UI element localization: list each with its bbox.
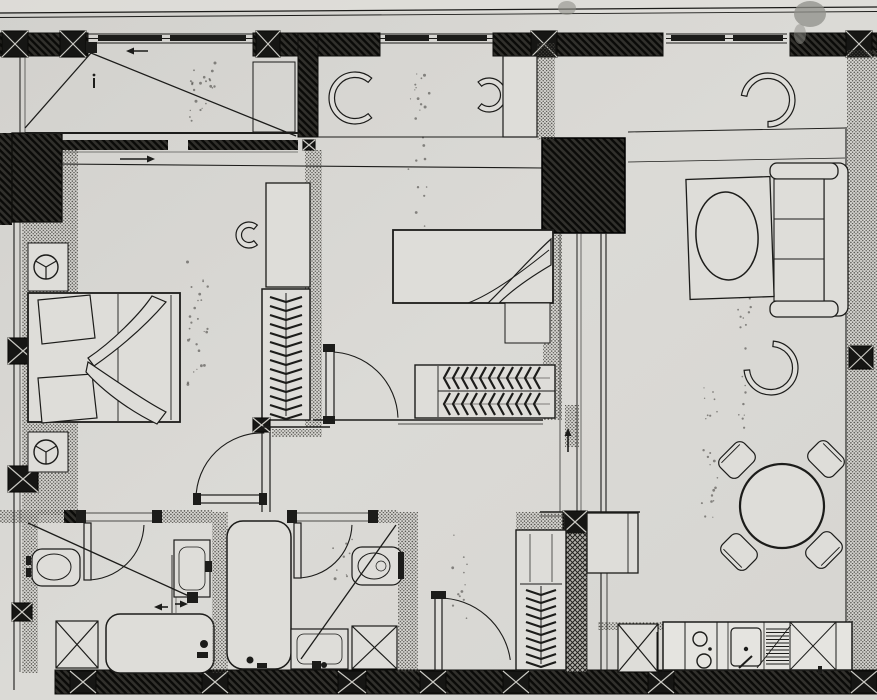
speckle-bedroom1-dot	[203, 364, 206, 367]
door-tip	[193, 493, 201, 505]
speckle-living-upper-dot	[742, 403, 744, 405]
speckle-bedroom2-dot	[424, 106, 427, 109]
speckle-bedroom2-dot	[420, 103, 422, 105]
speckle-balcony-dot	[205, 103, 207, 105]
floor-plan-image	[0, 0, 877, 700]
speckle-bathroom2-dot	[336, 569, 338, 571]
cooktop-burner-1	[693, 632, 707, 646]
speckle-bedroom2-dot	[417, 97, 420, 100]
speckle-entry-dot	[461, 590, 464, 593]
jamb-bath1b	[152, 510, 162, 523]
speckle-living-upper-dot	[742, 376, 744, 378]
door-tip	[259, 493, 267, 505]
speckle-bedroom2-dot	[423, 74, 426, 77]
speckle-bedroom2-dot	[410, 98, 411, 99]
speckle-living-upper-dot	[742, 418, 744, 420]
speckle-bedroom2-dot	[417, 186, 419, 188]
speckle-living-upper-dot	[748, 311, 750, 313]
speckle-entry-dot	[451, 566, 454, 569]
speckle-armchair-dot	[704, 398, 705, 399]
speckle-balcony-dot	[209, 79, 211, 81]
sofa-seats	[774, 179, 824, 301]
speckle-bedroom1-dot	[200, 299, 202, 301]
photo-smudge-3	[794, 24, 806, 44]
speckle-balcony-dot	[203, 76, 206, 79]
speckle-bedroom1-dot	[189, 315, 192, 318]
jamb-bath2b	[368, 510, 378, 523]
speckle-balcony-dot	[202, 108, 203, 109]
speckle-entry-dot	[466, 564, 468, 566]
tub1-drain	[200, 640, 208, 648]
window-sash	[170, 35, 246, 41]
speckle-balcony-dot	[211, 70, 214, 73]
washbasin1-tap	[205, 561, 212, 572]
wall-entry-west	[398, 512, 418, 672]
speckle-bedroom1-dot	[191, 286, 193, 288]
speckle-bedroom1-dot	[204, 331, 205, 332]
bath1-diagonal-end	[187, 592, 198, 603]
window-sash	[385, 35, 429, 41]
photo-smudge-2	[794, 1, 826, 27]
door-tip	[323, 416, 335, 424]
speckle-living-lower-dot	[712, 489, 715, 492]
speckle-bedroom2-dot	[424, 158, 427, 161]
wall-closet-east	[565, 533, 587, 672]
speckle-living-upper-dot	[738, 414, 740, 416]
column-living-big	[542, 138, 625, 233]
speckle-living-lower-dot	[717, 477, 719, 479]
wall-tub-niche	[212, 512, 228, 673]
speckle-bathroom2-dot	[346, 574, 347, 575]
door-leaf-bedroom2	[326, 348, 334, 420]
speckle-living-upper-dot	[749, 298, 750, 299]
window-sash	[98, 35, 162, 41]
speckle-bathroom2-dot	[332, 547, 334, 549]
speckle-living-upper-dot	[740, 316, 742, 318]
speckle-bedroom1-dot	[200, 364, 203, 367]
wall-bath-band-2	[162, 510, 212, 523]
speckle-living-upper-dot	[744, 391, 746, 393]
cooktop-burner-2	[697, 654, 711, 668]
speckle-balcony-dot	[199, 109, 201, 111]
door-leaf-bathroom2	[294, 523, 301, 578]
speckle-bedroom1-dot	[189, 338, 191, 340]
door-tip	[323, 344, 335, 352]
speckle-bedroom2-dot	[424, 225, 426, 227]
speckle-bedroom2-dot	[423, 195, 425, 197]
speckle-bedroom1-dot	[202, 281, 204, 283]
speckle-living-lower-dot	[704, 515, 706, 517]
sofa-armrest-bottom	[770, 301, 838, 317]
speckle-living-upper-dot	[744, 415, 745, 416]
speckle-living-lower-dot	[714, 487, 717, 490]
jamb-bath2	[287, 510, 297, 523]
speckle-entry-dot	[463, 599, 465, 601]
closet-top-wall	[516, 512, 565, 530]
speckle-living-upper-dot	[744, 347, 746, 349]
speckle-bedroom2-dot	[416, 73, 417, 74]
hall-cabinet	[587, 513, 638, 573]
cooktop-dot	[708, 647, 712, 651]
speckle-bedroom2-dot	[426, 186, 428, 188]
speckle-balcony-dot	[213, 85, 215, 87]
speckle-balcony-dot	[189, 116, 191, 118]
speckle-living-lower-dot	[710, 500, 713, 503]
speckle-balcony-dot	[195, 100, 198, 103]
bathtub-bathroom1	[106, 614, 214, 673]
column-balcony-sw	[12, 133, 62, 222]
speckle-entry-dot	[457, 593, 459, 595]
wall-hall-north-stip	[272, 429, 322, 437]
speckle-bedroom1-dot	[196, 369, 197, 370]
speckle-bedroom2-dot	[414, 84, 416, 86]
speckle-bedroom2-dot	[414, 89, 415, 90]
bed-pillow-bottom	[38, 374, 97, 423]
speckle-bedroom2-dot	[419, 110, 420, 111]
speckle-balcony-dot	[190, 110, 191, 111]
speckle-living-lower-dot	[702, 449, 704, 451]
corridor-stip-patch	[565, 405, 579, 447]
right-wall	[847, 50, 877, 693]
window-sash	[437, 35, 487, 41]
speckle-balcony-dot	[212, 87, 214, 89]
tub2-faucet	[257, 663, 267, 668]
jamb-bath1	[76, 510, 86, 523]
toilet1-flush	[26, 556, 31, 565]
speckle-bedroom2-dot	[422, 144, 425, 147]
sink-drain	[744, 647, 748, 651]
speckle-bedroom1-dot	[187, 382, 189, 384]
wall-study-east	[537, 43, 555, 140]
speckle-balcony-dot	[214, 62, 217, 65]
tub1-faucet	[197, 652, 208, 658]
speckle-living-upper-dot	[737, 309, 739, 311]
speckle-bathroom2-dot	[351, 539, 353, 541]
speckle-entry-dot	[459, 595, 461, 597]
speckle-living-lower-dot	[707, 456, 709, 458]
tub2-drain	[247, 657, 254, 664]
top-wall-c	[318, 33, 380, 56]
nightstand-bedroom2	[505, 303, 550, 343]
balcony-tick-dot	[93, 74, 96, 77]
speckle-bedroom1-dot	[195, 343, 197, 345]
speckle-balcony-dot	[199, 82, 202, 85]
washbasin2-tap	[312, 661, 321, 669]
speckle-bedroom1-dot	[205, 331, 208, 334]
speckle-entry-dot	[463, 556, 465, 558]
balcony-sill-bar2	[188, 140, 298, 150]
speckle-bedroom1-dot	[206, 328, 208, 330]
desk-bedroom1	[266, 183, 310, 287]
speckle-living-lower-dot	[709, 464, 710, 465]
speckle-bedroom1-dot	[189, 328, 191, 330]
speckle-bathroom2-dot	[334, 577, 337, 580]
speckle-bedroom2-dot	[415, 211, 418, 214]
speckle-bedroom2-dot	[414, 117, 417, 120]
speckle-balcony-dot	[191, 82, 193, 84]
window-sash	[671, 35, 725, 41]
desk-study	[503, 56, 537, 137]
speckle-bedroom1-dot	[197, 318, 199, 320]
speckle-living-lower-dot	[701, 502, 703, 504]
left-wall-outer	[0, 133, 12, 225]
speckle-living-lower-dot	[713, 460, 716, 463]
speckle-bathroom2-dot	[343, 556, 345, 558]
speckle-living-lower-dot	[713, 500, 715, 502]
speckle-bathroom2-dot	[346, 575, 348, 577]
floor-plan-canvas	[0, 0, 877, 700]
speckle-bedroom1-dot	[190, 322, 192, 324]
bed-pillow-top	[38, 295, 95, 344]
speckle-living-upper-dot	[739, 326, 741, 328]
speckle-bedroom2-dot	[408, 168, 410, 170]
speckle-bedroom2-dot	[421, 77, 423, 79]
speckle-entry-dot	[466, 617, 468, 619]
speckle-living-upper-dot	[744, 385, 746, 387]
speckle-entry-dot	[452, 605, 454, 607]
bathtub-bathroom2	[227, 521, 291, 669]
speckle-entry-dot	[453, 535, 454, 536]
speckle-living-upper-dot	[743, 427, 745, 429]
speckle-bedroom2-dot	[415, 159, 417, 161]
speckle-entry-dot	[464, 584, 465, 585]
wall-bath-band-1	[0, 510, 64, 523]
balcony-sill-bar	[60, 140, 168, 150]
speckle-bedroom1-dot	[193, 307, 196, 310]
door-jamb-entry	[431, 591, 446, 599]
speckle-bedroom1-dot	[193, 371, 194, 372]
speckle-balcony-dot	[209, 85, 212, 88]
speckle-balcony-dot	[205, 80, 207, 82]
photo-smudge-1	[558, 1, 576, 15]
speckle-bedroom1-dot	[207, 285, 209, 287]
speckle-living-lower-dot	[711, 494, 713, 496]
window-sash	[733, 35, 783, 41]
left-wall-lower	[22, 515, 38, 673]
speckle-bathroom2-dot	[349, 553, 351, 555]
speckle-bedroom1-dot	[186, 261, 189, 264]
washbasin2-mark	[321, 662, 327, 668]
speckle-armchair-dot	[705, 418, 706, 419]
top-wall-d	[493, 33, 663, 56]
speckle-armchair-dot	[709, 415, 711, 417]
toilet1-flush2	[26, 568, 31, 577]
speckle-living-lower-dot	[709, 452, 711, 454]
speckle-armchair-dot	[712, 391, 714, 393]
speckle-bedroom1-dot	[198, 293, 201, 296]
speckle-balcony-dot	[193, 69, 195, 71]
door-leaf-bedroom1	[196, 495, 262, 503]
speckle-armchair-dot	[703, 387, 704, 388]
speckle-living-lower-dot	[712, 517, 713, 518]
dining-table	[740, 464, 824, 548]
speckle-armchair-dot	[707, 414, 709, 416]
speckle-armchair-dot	[714, 398, 716, 400]
speckle-living-upper-dot	[750, 306, 752, 308]
speckle-bedroom2-dot	[415, 87, 416, 88]
wardrobe-bedroom2	[415, 365, 555, 418]
speckle-bedroom1-dot	[197, 300, 199, 302]
sofa-armrest-top	[770, 163, 838, 179]
toilet2-tank	[398, 552, 404, 579]
speckle-bedroom2-dot	[428, 92, 431, 95]
speckle-living-upper-dot	[743, 317, 745, 319]
speckle-armchair-dot	[716, 411, 718, 413]
counter-peg	[818, 666, 822, 674]
sofa-back	[824, 163, 848, 316]
speckle-balcony-dot	[193, 89, 195, 91]
speckle-entry-dot	[463, 572, 465, 574]
balcony-pier	[298, 33, 318, 137]
wall-bath-band-3	[378, 510, 398, 523]
speckle-living-upper-dot	[745, 324, 747, 326]
speckle-balcony-dot	[190, 80, 192, 82]
door-leaf-entry	[435, 597, 442, 670]
casement-hinge	[86, 42, 97, 53]
speckle-balcony-dot	[191, 120, 193, 122]
speckle-bedroom1-dot	[198, 349, 201, 352]
speckle-bathroom2-dot	[345, 543, 347, 545]
